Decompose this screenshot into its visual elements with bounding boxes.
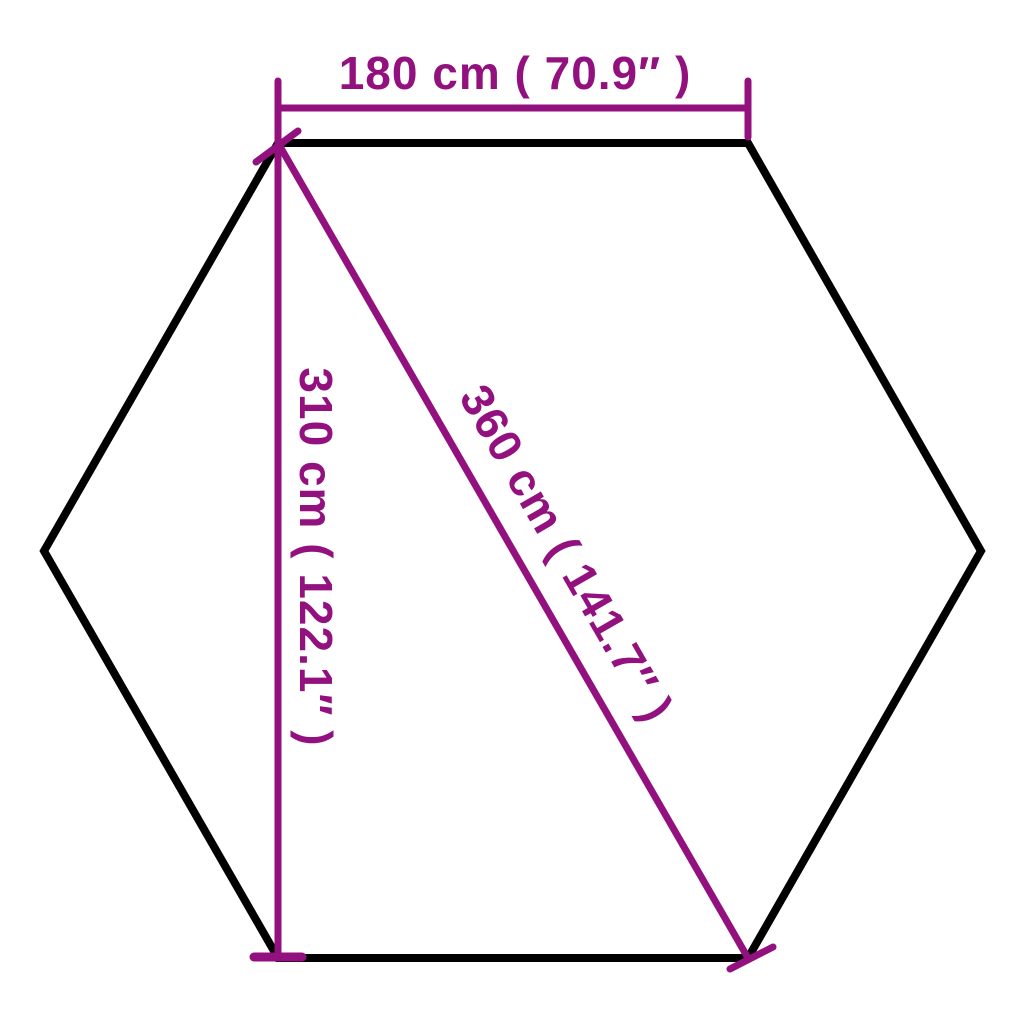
dimension-labels: 180 cm ( 70.9″ ) 310 cm ( 122.1″ ) 360 c… <box>290 47 691 747</box>
dimension-diagram: 180 cm ( 70.9″ ) 310 cm ( 122.1″ ) 360 c… <box>0 0 1024 1024</box>
diagram-canvas: 180 cm ( 70.9″ ) 310 cm ( 122.1″ ) 360 c… <box>0 0 1024 1024</box>
diagonal-dimension-label: 360 cm ( 141.7″ ) <box>450 376 685 730</box>
width-dimension-label: 180 cm ( 70.9″ ) <box>339 47 692 99</box>
diagonal-dimension-line <box>278 143 748 958</box>
height-dimension-label: 310 cm ( 122.1″ ) <box>290 367 342 746</box>
